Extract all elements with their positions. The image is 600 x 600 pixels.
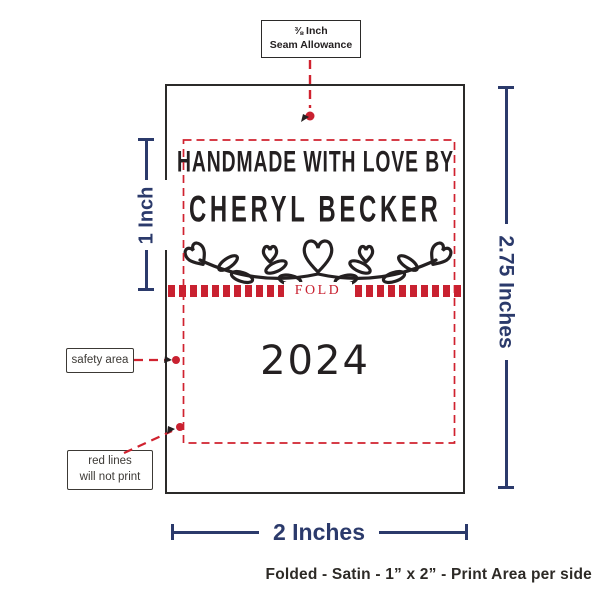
red-lines-note-line2: will not print [80, 470, 141, 486]
dim-cap-print-height-top [138, 138, 154, 141]
seam-allowance-note: ⅜ Inch Seam Allowance [261, 20, 361, 58]
dim-cap-print-height-bottom [138, 288, 154, 291]
safety-area-note: safety area [66, 348, 134, 373]
seam-allowance-line2: Seam Allowance [270, 39, 352, 53]
heart-vine-icon [182, 230, 454, 286]
red-lines-note-line1: red lines [88, 454, 131, 470]
label-proof-diagram: HANDMADE WITH LOVE BY CHERYL BECKER [0, 0, 600, 600]
dim-cap-total-height-top [498, 86, 514, 89]
label-title-line: HANDMADE WITH LOVE BY [165, 151, 465, 175]
heart-vine-ornament [182, 230, 454, 286]
label-name-line: CHERYL BECKER [165, 194, 465, 225]
label-year: 2024 [165, 338, 465, 384]
dim-cap-width-right [465, 524, 468, 540]
dim-label-print-height-text: 1 Inch [136, 186, 159, 244]
dim-label-total-height: 2.75 Inches [487, 224, 525, 360]
product-caption: Folded - Satin - 1” x 2” - Print Area pe… [8, 566, 592, 584]
safety-area-note-text: safety area [72, 353, 129, 369]
dim-label-print-height: 1 Inch [127, 180, 167, 250]
seam-allowance-line1: ⅜ Inch [294, 25, 327, 39]
red-lines-note: red lines will not print [67, 450, 153, 490]
dim-cap-width-left [171, 524, 174, 540]
label-name-text: CHERYL BECKER [189, 187, 442, 231]
dim-label-width-text: 2 Inches [273, 519, 365, 546]
fold-label: FOLD [284, 282, 352, 300]
dim-label-total-height-text: 2.75 Inches [494, 235, 518, 348]
dim-label-width: 2 Inches [259, 514, 379, 550]
label-title-text: HANDMADE WITH LOVE BY [177, 146, 454, 180]
dim-cap-total-height-bottom [498, 486, 514, 489]
